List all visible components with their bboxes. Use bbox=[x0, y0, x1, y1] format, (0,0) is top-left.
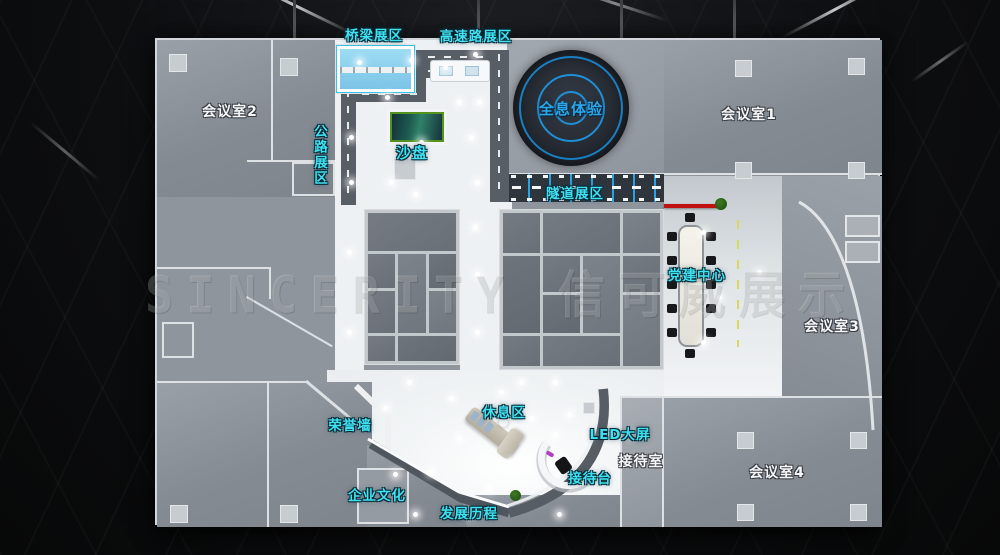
light-dot bbox=[519, 380, 524, 385]
light-dot bbox=[449, 396, 454, 401]
light-dot bbox=[701, 230, 706, 235]
label-history: 发展历程 bbox=[440, 502, 498, 522]
brand-watermark: SINCERITY 信可威展示 bbox=[145, 253, 858, 328]
label-rest-area: 休息区 bbox=[482, 401, 526, 421]
light-dot bbox=[409, 58, 414, 63]
label-road-zone: 公路展区 bbox=[309, 124, 329, 186]
light-dot bbox=[429, 470, 434, 475]
label-bridge-zone: 桥梁展区 bbox=[345, 24, 403, 44]
light-dot bbox=[349, 180, 354, 185]
light-dot bbox=[557, 512, 562, 517]
ceiling-light-streak bbox=[910, 40, 969, 83]
label-highway-zone: 高速路展区 bbox=[440, 25, 513, 45]
truss-post bbox=[293, 0, 296, 40]
label-culture: 企业文化 bbox=[348, 484, 406, 504]
label-sand-table: 沙盘 bbox=[396, 142, 428, 163]
truss-post bbox=[620, 0, 623, 40]
label-tunnel-zone: 隧道展区 bbox=[546, 182, 604, 202]
light-dot bbox=[567, 412, 572, 417]
label-led-screen: LED大屏 bbox=[589, 423, 650, 443]
light-dot bbox=[457, 436, 462, 441]
truss-post bbox=[733, 0, 736, 40]
light-dot bbox=[529, 416, 534, 421]
light-dot bbox=[389, 180, 394, 185]
light-dot bbox=[413, 192, 418, 197]
light-dot bbox=[509, 460, 514, 465]
floorplan: SINCERITY 信可威展示 桥梁展区 高速路展区 会议室2 公路展区 沙盘 … bbox=[155, 38, 880, 525]
light-dot bbox=[457, 100, 462, 105]
label-meeting2: 会议室2 bbox=[202, 101, 258, 121]
light-dot bbox=[407, 380, 412, 385]
light-dot bbox=[499, 390, 504, 395]
label-meeting1: 会议室1 bbox=[721, 104, 777, 124]
light-dot bbox=[473, 52, 478, 57]
light-dot bbox=[393, 472, 398, 477]
light-dot bbox=[487, 486, 492, 491]
ceiling-light-streak bbox=[30, 121, 101, 181]
light-dot bbox=[383, 406, 388, 411]
ceiling-light-streak bbox=[781, 0, 888, 39]
light-dot bbox=[469, 135, 474, 140]
light-dot bbox=[553, 432, 558, 437]
light-dot bbox=[357, 60, 362, 65]
light-dot bbox=[443, 65, 448, 70]
label-meeting4: 会议室4 bbox=[749, 462, 805, 482]
ceiling-light-streak bbox=[562, 0, 668, 22]
label-meeting3: 会议室3 bbox=[804, 316, 860, 336]
light-dot bbox=[553, 380, 558, 385]
light-dot bbox=[385, 95, 390, 100]
label-reception-room: 接待室 bbox=[619, 451, 664, 471]
light-dot bbox=[349, 135, 354, 140]
screenshot-root: { "watermark": "SINCERITY 信可威展示", "label… bbox=[0, 0, 1000, 555]
label-honor-wall: 荣誉墙 bbox=[328, 414, 372, 434]
label-holography: 全息体验 bbox=[539, 98, 603, 119]
light-dot bbox=[701, 340, 706, 345]
label-party-center: 党建中心 bbox=[668, 264, 726, 284]
light-dot bbox=[347, 330, 352, 335]
light-dot bbox=[413, 512, 418, 517]
light-dot bbox=[475, 330, 480, 335]
label-reception-desk: 接待台 bbox=[568, 467, 612, 487]
light-dot bbox=[473, 225, 478, 230]
light-dot bbox=[475, 180, 480, 185]
light-dot bbox=[477, 100, 482, 105]
